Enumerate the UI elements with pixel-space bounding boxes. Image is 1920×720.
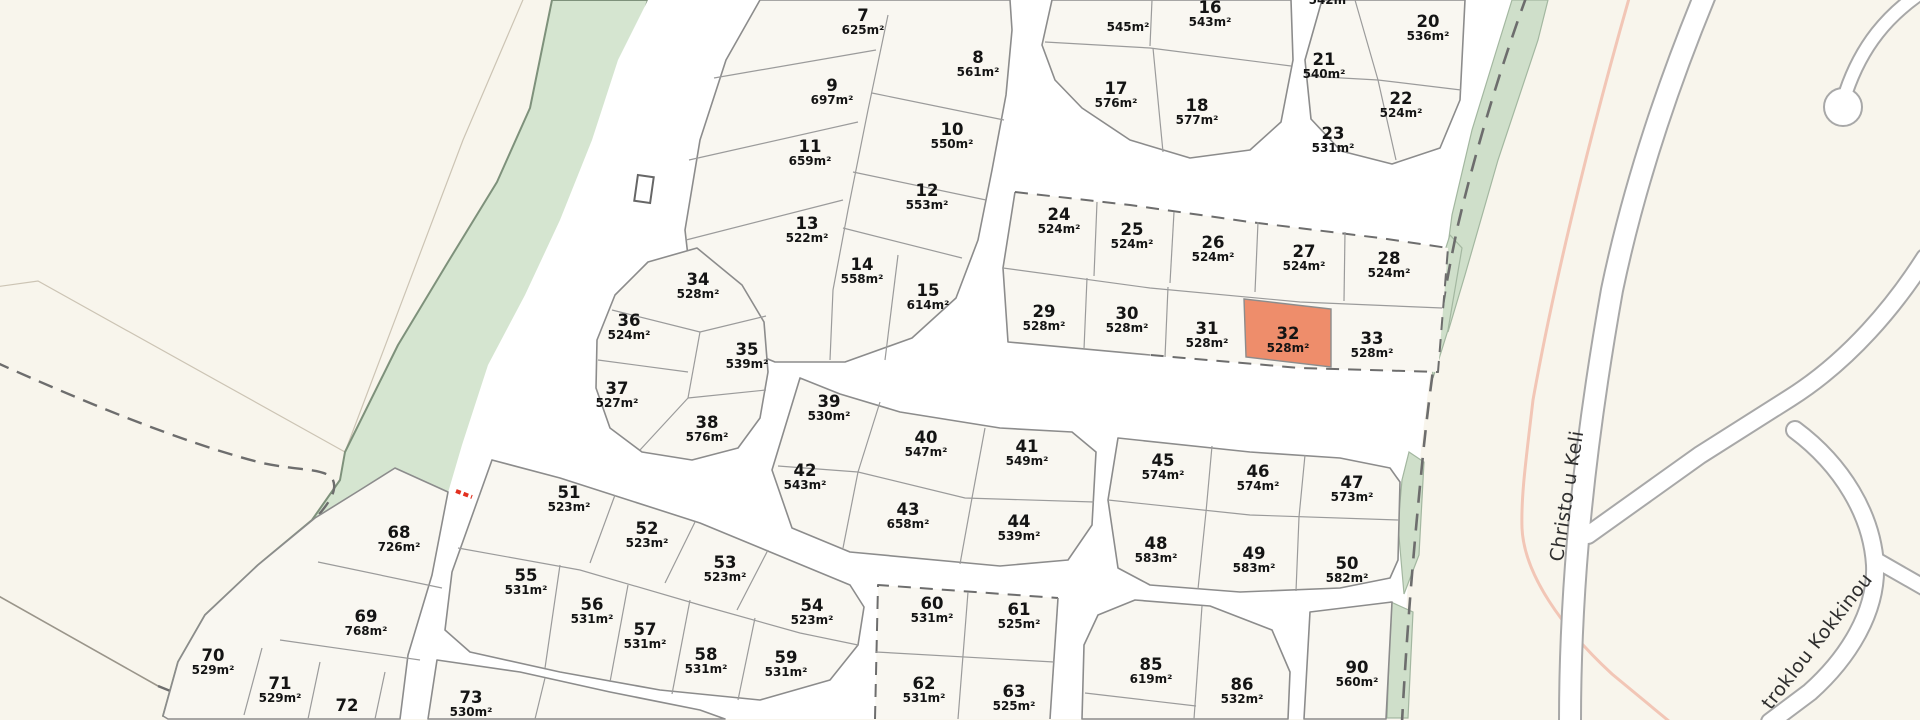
svg-text:72: 72: [336, 696, 359, 715]
svg-text:525m²: 525m²: [993, 699, 1036, 713]
small-structure: [634, 175, 653, 203]
svg-text:529m²: 529m²: [259, 691, 302, 705]
svg-text:523m²: 523m²: [704, 570, 747, 584]
svg-text:531m²: 531m²: [624, 637, 667, 651]
svg-text:531m²: 531m²: [765, 665, 808, 679]
svg-text:577m²: 577m²: [1176, 113, 1219, 127]
svg-text:531m²: 531m²: [571, 612, 614, 626]
plot-label: 545m²: [1107, 20, 1150, 34]
svg-text:524m²: 524m²: [1192, 250, 1235, 264]
svg-text:536m²: 536m²: [1407, 29, 1450, 43]
svg-text:530m²: 530m²: [808, 409, 851, 423]
svg-text:543m²: 543m²: [1189, 15, 1232, 29]
boundary-line-bottom-left: [0, 594, 158, 686]
svg-text:524m²: 524m²: [608, 328, 651, 342]
svg-text:659m²: 659m²: [789, 154, 832, 168]
svg-text:523m²: 523m²: [548, 500, 591, 514]
svg-text:576m²: 576m²: [686, 430, 729, 444]
svg-text:574m²: 574m²: [1237, 479, 1280, 493]
svg-text:531m²: 531m²: [685, 662, 728, 676]
block-i: [163, 468, 448, 719]
svg-text:545m²: 545m²: [1107, 20, 1150, 34]
svg-text:658m²: 658m²: [887, 517, 930, 531]
svg-text:573m²: 573m²: [1331, 490, 1374, 504]
svg-text:524m²: 524m²: [1111, 237, 1154, 251]
svg-text:524m²: 524m²: [1283, 259, 1326, 273]
svg-text:726m²: 726m²: [378, 540, 421, 554]
svg-text:527m²: 527m²: [596, 396, 639, 410]
svg-text:583m²: 583m²: [1135, 551, 1178, 565]
svg-text:549m²: 549m²: [1006, 454, 1049, 468]
plot-label: 542m²: [1309, 0, 1352, 7]
svg-text:558m²: 558m²: [841, 272, 884, 286]
svg-text:524m²: 524m²: [1368, 266, 1411, 280]
svg-text:532m²: 532m²: [1221, 692, 1264, 706]
road-network-east: [1570, 0, 1920, 720]
svg-text:560m²: 560m²: [1336, 675, 1379, 689]
svg-text:529m²: 529m²: [192, 663, 235, 677]
svg-text:550m²: 550m²: [931, 137, 974, 151]
plot-label-72: 72: [336, 696, 359, 715]
svg-text:524m²: 524m²: [1380, 106, 1423, 120]
svg-text:528m²: 528m²: [677, 287, 720, 301]
svg-text:524m²: 524m²: [1038, 222, 1081, 236]
svg-text:561m²: 561m²: [957, 65, 1000, 79]
svg-text:582m²: 582m²: [1326, 571, 1369, 585]
svg-text:540m²: 540m²: [1303, 67, 1346, 81]
svg-text:531m²: 531m²: [505, 583, 548, 597]
svg-text:574m²: 574m²: [1142, 468, 1185, 482]
svg-text:547m²: 547m²: [905, 445, 948, 459]
map-canvas[interactable]: 545m²542m²7625m²8561m²9697m²10550m²11659…: [0, 0, 1920, 720]
svg-text:528m²: 528m²: [1023, 319, 1066, 333]
svg-text:619m²: 619m²: [1130, 672, 1173, 686]
svg-text:528m²: 528m²: [1267, 341, 1310, 355]
svg-text:625m²: 625m²: [842, 23, 885, 37]
svg-text:543m²: 543m²: [784, 478, 827, 492]
svg-text:528m²: 528m²: [1351, 346, 1394, 360]
svg-text:553m²: 553m²: [906, 198, 949, 212]
svg-text:768m²: 768m²: [345, 624, 388, 638]
svg-text:583m²: 583m²: [1233, 561, 1276, 575]
svg-text:528m²: 528m²: [1106, 321, 1149, 335]
svg-text:528m²: 528m²: [1186, 336, 1229, 350]
svg-text:539m²: 539m²: [998, 529, 1041, 543]
svg-text:523m²: 523m²: [791, 613, 834, 627]
svg-text:542m²: 542m²: [1309, 0, 1352, 7]
svg-text:614m²: 614m²: [907, 298, 950, 312]
svg-text:530m²: 530m²: [450, 705, 493, 719]
svg-text:523m²: 523m²: [626, 536, 669, 550]
svg-text:697m²: 697m²: [811, 93, 854, 107]
svg-text:531m²: 531m²: [911, 611, 954, 625]
svg-text:539m²: 539m²: [726, 357, 769, 371]
svg-text:531m²: 531m²: [903, 691, 946, 705]
map-viewport[interactable]: 545m²542m²7625m²8561m²9697m²10550m²11659…: [0, 0, 1920, 720]
svg-text:531m²: 531m²: [1312, 141, 1355, 155]
svg-text:576m²: 576m²: [1095, 96, 1138, 110]
svg-text:522m²: 522m²: [786, 231, 829, 245]
svg-text:525m²: 525m²: [998, 617, 1041, 631]
